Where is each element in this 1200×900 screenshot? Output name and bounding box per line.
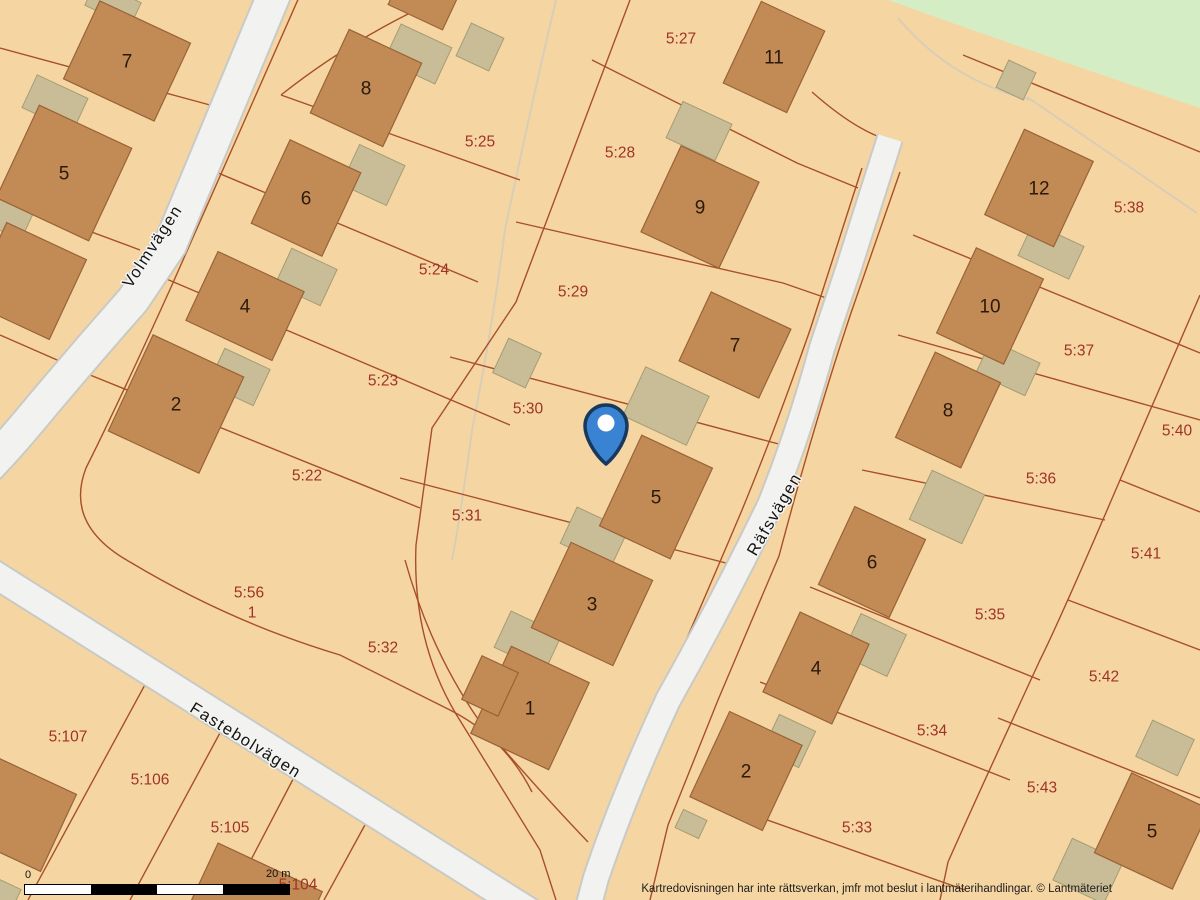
map-attribution: Kartredovisningen har inte rättsverkan, …: [641, 883, 1112, 895]
map-viewport[interactable]: 75864211975311210864255:275:255:285:385:…: [0, 0, 1200, 900]
building-number: 4: [240, 297, 251, 318]
pin-center-dot: [598, 415, 615, 432]
building-number: 5: [1147, 822, 1158, 843]
building-number: 9: [695, 198, 706, 219]
building-number: 2: [741, 762, 752, 783]
parcel-label: 5:29: [558, 283, 588, 300]
parcel-label: 5:42: [1089, 668, 1119, 685]
parcel-label: 5:32: [368, 639, 398, 656]
parcel-label: 5:31: [452, 507, 482, 524]
parcel-label: 5:35: [975, 606, 1005, 623]
building-number: 5: [651, 488, 662, 509]
parcel-label: 5:106: [131, 771, 170, 788]
parcel-label: 5:22: [292, 467, 322, 484]
parcel-label: 5:23: [368, 372, 398, 389]
cadastral-map-canvas[interactable]: 75864211975311210864255:275:255:285:385:…: [0, 0, 1200, 900]
parcel-label: 5:33: [842, 819, 872, 836]
scale-bar-segment: [25, 885, 91, 894]
scale-bar-segment: [223, 885, 289, 894]
scale-start-label: 0: [25, 870, 31, 881]
parcel-label: 1: [248, 604, 257, 621]
building-number: 4: [811, 659, 822, 680]
building-number: 11: [764, 48, 784, 69]
parcel-label: 5:25: [465, 133, 495, 150]
parcel-label: 5:37: [1064, 342, 1094, 359]
parcel-label: 5:34: [917, 722, 948, 739]
building-number: 3: [587, 595, 598, 616]
parcel-label: 5:43: [1027, 779, 1057, 796]
building-number: 7: [122, 52, 133, 73]
parcel-label: 5:36: [1026, 470, 1056, 487]
building-number: 8: [943, 401, 954, 422]
parcel-label: 5:41: [1131, 545, 1161, 562]
parcel-label: 5:56: [234, 584, 264, 601]
scale-bar-segment: [91, 885, 157, 894]
parcel-label: 5:28: [605, 144, 635, 161]
parcel-label: 5:105: [211, 819, 250, 836]
parcel-label: 5:107: [49, 728, 88, 745]
building-number: 10: [979, 297, 1000, 318]
building-number: 6: [867, 553, 878, 574]
building-number: 6: [301, 189, 312, 210]
parcel-label: 5:38: [1114, 199, 1144, 216]
scale-bar-segment: [157, 885, 223, 894]
scale-bar: [24, 884, 290, 895]
parcel-label: 5:40: [1162, 422, 1193, 439]
building-number: 5: [59, 164, 70, 185]
parcel-label: 5:27: [666, 30, 696, 47]
building-number: 8: [361, 79, 372, 100]
parcel-label: 5:24: [419, 261, 450, 278]
building-number: 1: [525, 699, 536, 720]
building-number: 7: [730, 336, 741, 357]
parcel-label: 5:30: [513, 400, 544, 417]
scale-end-label: 20 m: [266, 869, 290, 880]
building-number: 2: [171, 395, 182, 416]
building-number: 12: [1028, 179, 1049, 200]
